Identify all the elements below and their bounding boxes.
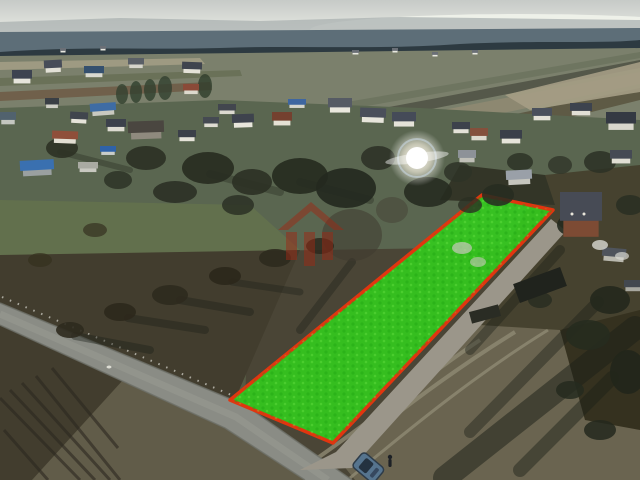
house — [532, 108, 552, 120]
house — [106, 119, 126, 131]
house-roof — [182, 62, 202, 70]
house-roof — [328, 98, 352, 107]
house — [84, 66, 104, 77]
tree — [566, 320, 610, 350]
house-roof — [570, 103, 592, 111]
house-roof — [12, 70, 32, 79]
house — [360, 108, 386, 123]
house-roof — [500, 130, 522, 139]
house — [272, 112, 292, 125]
tree — [232, 169, 272, 195]
house — [432, 52, 438, 56]
house — [606, 112, 636, 130]
house — [500, 130, 522, 143]
house — [506, 169, 533, 185]
tree — [507, 153, 533, 171]
house-roof — [288, 99, 306, 105]
house — [470, 128, 488, 140]
watermark-bar — [322, 232, 333, 260]
tree — [104, 171, 132, 189]
house-roof — [106, 119, 126, 127]
tree — [83, 223, 107, 237]
house — [100, 46, 106, 50]
watermark-bar — [304, 232, 315, 266]
tree — [590, 286, 630, 314]
house — [570, 103, 592, 115]
house — [352, 50, 359, 54]
house — [45, 98, 59, 108]
house — [52, 131, 78, 144]
house-roof — [432, 52, 438, 55]
house — [20, 159, 55, 176]
tree — [444, 162, 472, 182]
brick-house-window — [571, 213, 574, 216]
house — [12, 70, 32, 83]
house-roof — [128, 58, 144, 64]
house-roof — [452, 122, 470, 129]
house — [178, 130, 196, 141]
tree — [116, 84, 128, 104]
tree — [158, 76, 172, 100]
house-roof — [218, 104, 236, 110]
house — [60, 48, 66, 52]
tree — [182, 152, 234, 184]
house-roof — [352, 50, 359, 53]
house — [218, 104, 236, 114]
tree — [584, 420, 616, 440]
house-roof — [506, 169, 532, 180]
tree — [104, 303, 136, 321]
tree — [130, 81, 142, 103]
house-roof — [232, 114, 254, 123]
house-roof — [20, 159, 54, 171]
house — [452, 122, 470, 133]
tree — [556, 381, 584, 399]
house-roof — [178, 130, 196, 137]
tree — [126, 146, 166, 170]
house — [128, 58, 144, 68]
house-roof — [0, 112, 16, 120]
house — [0, 112, 16, 124]
house — [90, 102, 117, 116]
tree — [28, 253, 52, 267]
house-roof — [610, 150, 632, 159]
house — [624, 280, 640, 291]
tree — [376, 197, 408, 223]
house — [560, 192, 602, 237]
house-roof — [458, 150, 476, 158]
house — [392, 112, 416, 127]
house-roof — [44, 60, 62, 69]
person — [388, 455, 392, 467]
road-marking-dot — [107, 366, 112, 369]
tree — [548, 156, 572, 174]
house-roof — [360, 108, 386, 118]
house — [232, 114, 254, 128]
tree — [153, 181, 197, 203]
house-roof — [624, 280, 640, 287]
house — [392, 48, 398, 52]
tree — [209, 267, 241, 285]
watermark-bar — [286, 232, 297, 260]
house — [288, 99, 306, 108]
house-roof — [60, 48, 66, 51]
house — [100, 146, 116, 155]
tree — [198, 74, 212, 98]
house — [70, 112, 89, 124]
house-roof — [45, 98, 59, 104]
house — [458, 150, 476, 162]
pale-patch — [452, 242, 472, 254]
house-roof — [470, 128, 488, 136]
tree — [316, 168, 376, 208]
house-roof — [100, 46, 106, 49]
white-tarp — [592, 240, 608, 250]
tree — [458, 197, 482, 213]
house-roof — [84, 66, 104, 73]
tree — [152, 285, 188, 305]
brick-house-window — [583, 213, 586, 216]
white-tarp — [615, 252, 629, 260]
house — [610, 150, 632, 163]
house-roof — [183, 84, 199, 90]
pale-patch — [470, 257, 486, 267]
tree — [144, 79, 156, 101]
house — [128, 120, 165, 139]
house-roof — [392, 112, 416, 121]
house-roof — [128, 120, 164, 133]
house-roof — [52, 131, 78, 140]
house-roof — [100, 146, 116, 152]
tree — [222, 195, 254, 215]
house — [78, 162, 98, 172]
aerial-photograph — [0, 0, 640, 480]
house — [44, 60, 63, 73]
house-roof — [78, 162, 98, 168]
tree — [482, 184, 514, 206]
house — [472, 50, 478, 54]
house — [328, 98, 352, 113]
person-head — [388, 455, 392, 459]
house-roof — [532, 108, 552, 116]
photo-canvas — [0, 0, 640, 480]
house-roof — [272, 112, 292, 121]
tree — [56, 322, 84, 338]
house-roof — [203, 117, 219, 123]
house-roof — [70, 112, 88, 120]
house-roof — [392, 48, 398, 51]
house-roof — [560, 192, 602, 221]
person-body — [388, 459, 391, 467]
house-roof — [472, 50, 478, 53]
house-roof — [606, 112, 636, 124]
house — [183, 84, 199, 94]
house — [203, 117, 219, 127]
house — [182, 62, 202, 74]
